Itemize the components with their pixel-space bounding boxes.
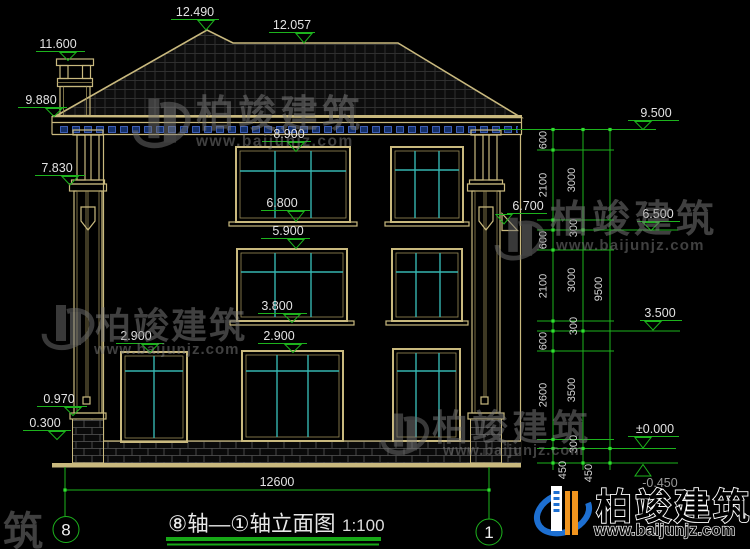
title-underline-thick <box>166 537 381 541</box>
elevation-marker-3800: 3.800 <box>258 299 307 323</box>
svg-text:柏竣建筑: 柏竣建筑 <box>0 510 48 549</box>
title-scale: 1:100 <box>342 516 385 535</box>
elevation-marker-0000: ±0.000 <box>628 422 679 448</box>
logo-brand-text: 柏竣建筑 <box>596 486 750 527</box>
logo-swoosh <box>531 485 595 540</box>
elevation-marker-2900-center: 2.900 <box>258 329 307 353</box>
svg-text:9.880: 9.880 <box>25 93 56 107</box>
dim-label: 450 <box>557 461 569 479</box>
svg-text:0.300: 0.300 <box>29 416 60 430</box>
window-3f-center <box>229 147 357 226</box>
overall-dim-label: 12600 <box>260 475 295 489</box>
window-2f-right <box>386 249 468 325</box>
dim-label: 600 <box>538 332 550 350</box>
dim-label: 450 <box>583 464 595 482</box>
watermark-corner-partial: 柏竣建筑 <box>0 510 48 549</box>
svg-text:7.830: 7.830 <box>41 161 72 175</box>
svg-text:www.baijunjz.com: www.baijunjz.com <box>93 341 239 358</box>
svg-text:11.600: 11.600 <box>39 37 76 51</box>
axis-bubble-8: 8 <box>53 517 79 543</box>
svg-text:柏竣建筑: 柏竣建筑 <box>432 407 592 448</box>
svg-text:www.baijunjz.com: www.baijunjz.com <box>555 237 705 254</box>
svg-text:6.700: 6.700 <box>512 199 543 213</box>
overall-dimension: 12600 <box>63 467 490 519</box>
axis-number-right: 1 <box>484 523 493 542</box>
elevation-marker-5900: 5.900 <box>261 224 310 249</box>
svg-text:12.490: 12.490 <box>176 5 214 19</box>
svg-text:3.500: 3.500 <box>644 306 675 320</box>
ground-line <box>52 463 521 468</box>
svg-text:2.900: 2.900 <box>263 329 294 343</box>
downspout-shoe-right <box>481 397 488 404</box>
drawing-canvas: 600 2100 300 600 2100 300 600 2600 300 4… <box>0 0 750 549</box>
elevation-marker-11600: 11.600 <box>36 37 85 61</box>
elevation-marker-3500: 3.500 <box>640 306 682 330</box>
dim-label: 600 <box>538 131 550 149</box>
title-underline-thin <box>167 544 379 546</box>
dim-label: 9500 <box>593 277 605 301</box>
downspout-shoe-left <box>83 397 90 404</box>
svg-text:3.800: 3.800 <box>261 299 292 313</box>
logo-url-text: www.baijunjz.com <box>593 522 736 539</box>
axis-number-left: 8 <box>61 521 70 540</box>
svg-text:柏竣建筑: 柏竣建筑 <box>95 305 247 346</box>
cad-elevation-drawing: 600 2100 300 600 2100 300 600 2600 300 4… <box>0 0 750 549</box>
dim-label: 3000 <box>566 168 578 192</box>
svg-text:5.900: 5.900 <box>272 224 303 238</box>
dim-label: 300 <box>568 317 580 335</box>
window-3f-right <box>385 147 469 226</box>
elevation-marker-0300: 0.300 <box>23 416 71 440</box>
svg-text:柏竣建筑: 柏竣建筑 <box>550 199 718 241</box>
dim-label: 2100 <box>538 173 550 197</box>
svg-text:12.057: 12.057 <box>273 18 311 32</box>
window-1f-center <box>242 351 343 441</box>
dim-label: 2100 <box>538 274 550 298</box>
dim-label: 3500 <box>566 378 578 402</box>
elevation-marker-12057: 12.057 <box>269 18 315 43</box>
svg-text:www.baijunjz.com: www.baijunjz.com <box>442 443 584 459</box>
window-1f-left <box>121 352 187 442</box>
svg-text:www.baijunjz.com: www.baijunjz.com <box>195 133 354 150</box>
watermark-top: 柏竣建筑 www.baijunjz.com <box>129 94 364 153</box>
axis-bubble-1: 1 <box>476 519 502 545</box>
dim-label: 3000 <box>566 268 578 292</box>
svg-text:9.500: 9.500 <box>640 106 671 120</box>
svg-text:0.970: 0.970 <box>43 392 74 406</box>
company-logo: 柏竣建筑 www.baijunjz.com <box>531 485 750 540</box>
drawing-title: ⑧轴—①轴立面图 1:100 <box>166 512 385 546</box>
elevation-marker-12490: 12.490 <box>171 5 219 30</box>
title-text: ⑧轴—①轴立面图 <box>168 512 336 536</box>
svg-text:柏竣建筑: 柏竣建筑 <box>196 94 364 136</box>
dim-label: 2600 <box>538 383 550 407</box>
watermark-bottom: 柏竣建筑 www.baijunjz.com <box>378 407 592 459</box>
elevation-marker-0970: 0.970 <box>37 392 87 416</box>
watermark-left: 柏竣建筑 www.baijunjz.com <box>38 303 247 358</box>
svg-text:6.800: 6.800 <box>266 196 297 210</box>
svg-text:±0.000: ±0.000 <box>636 422 674 436</box>
elevation-marker-9500: 9.500 <box>628 106 679 130</box>
